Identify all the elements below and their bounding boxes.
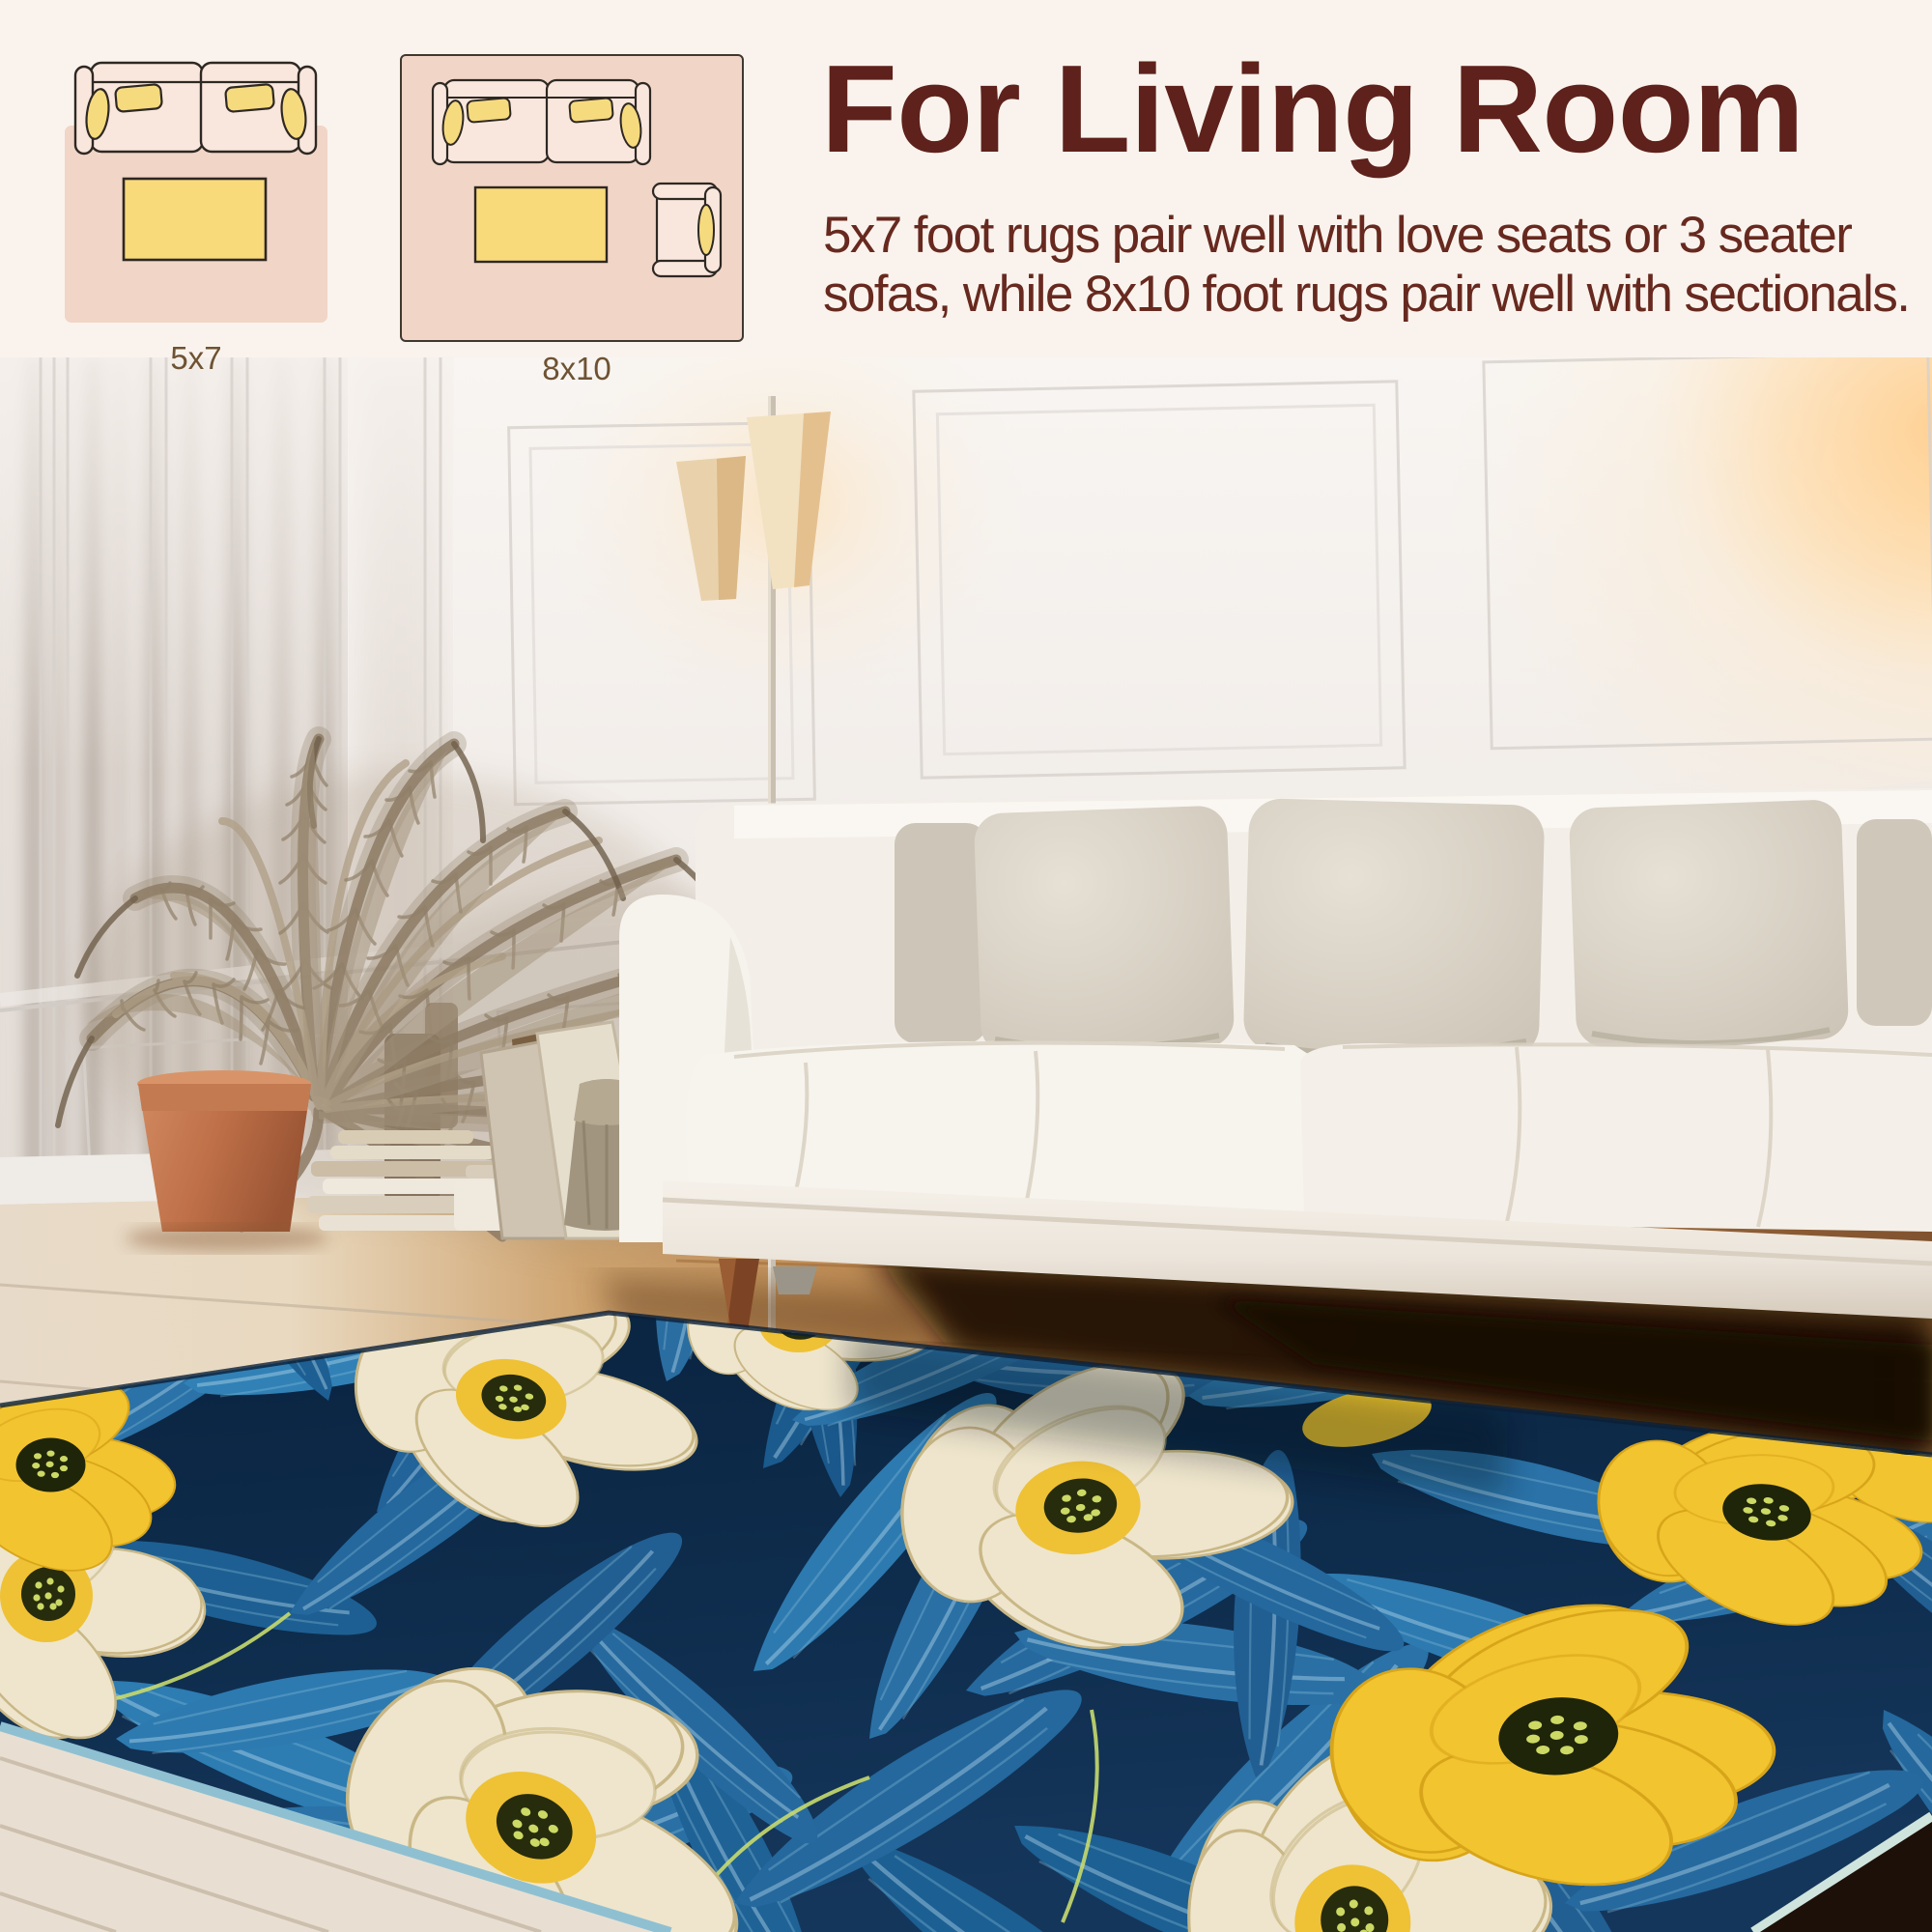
svg-text:5x7: 5x7 xyxy=(170,340,221,376)
svg-text:8x10: 8x10 xyxy=(542,351,611,386)
